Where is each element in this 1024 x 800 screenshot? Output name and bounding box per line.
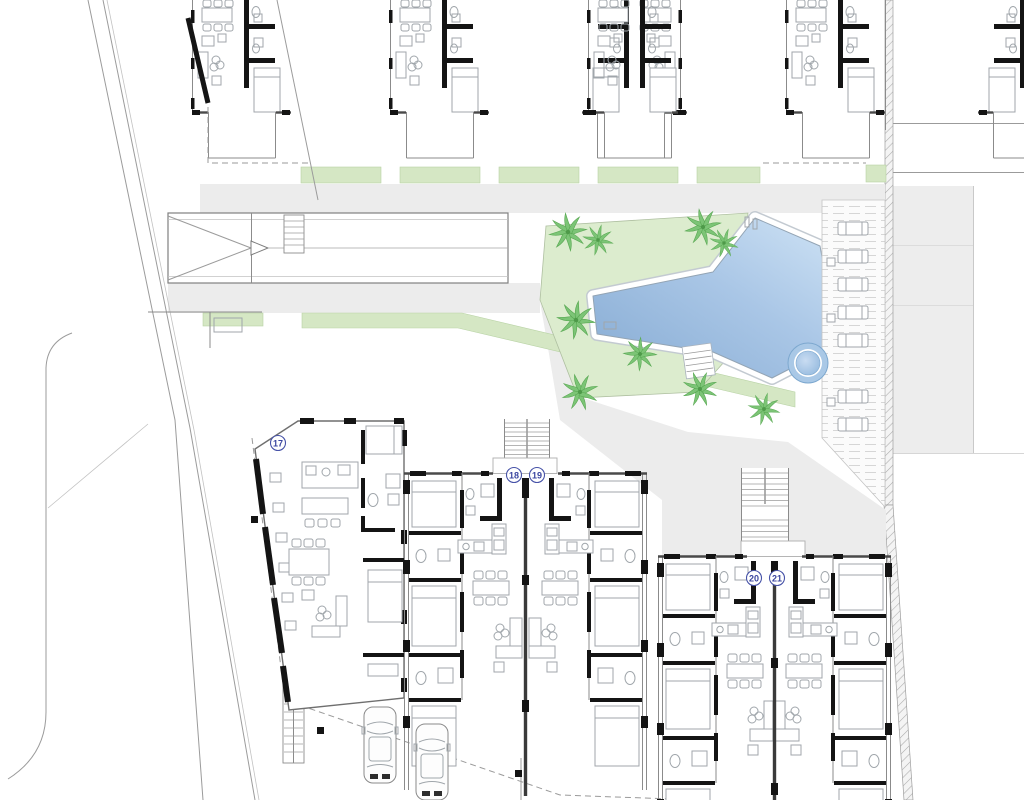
floor-plan-canvas: 17 18 19 20 21 (0, 0, 1024, 800)
survey-marker (251, 516, 258, 523)
site-floor-plan: 17 18 19 20 21 (0, 0, 1024, 800)
svg-text:17: 17 (273, 439, 283, 449)
deck-side-table (827, 314, 835, 322)
parked-car-2 (414, 724, 450, 800)
survey-marker (515, 770, 522, 777)
stair-units-18-19 (504, 419, 550, 458)
entry-porch (741, 541, 805, 557)
survey-marker (317, 727, 324, 734)
unit-label-17: 17 (271, 436, 286, 451)
ramp-side-stair (284, 215, 304, 253)
bed (366, 426, 402, 454)
unit-label-21: 21 (770, 571, 785, 586)
pool-steps (682, 343, 715, 379)
parked-car-1 (362, 707, 398, 783)
svg-text:20: 20 (749, 574, 759, 584)
garage-ramp (168, 213, 508, 283)
hot-tub (788, 343, 828, 383)
svg-text:21: 21 (772, 574, 782, 584)
svg-text:19: 19 (532, 471, 542, 481)
unit-label-18: 18 (507, 468, 522, 483)
unit-label-19: 19 (530, 468, 545, 483)
deck-side-table (827, 258, 835, 266)
island (302, 498, 348, 514)
svg-text:18: 18 (509, 471, 519, 481)
bed (368, 570, 402, 622)
entry-porch (493, 458, 557, 474)
deck-side-table (827, 398, 835, 406)
unit-label-20: 20 (747, 571, 762, 586)
